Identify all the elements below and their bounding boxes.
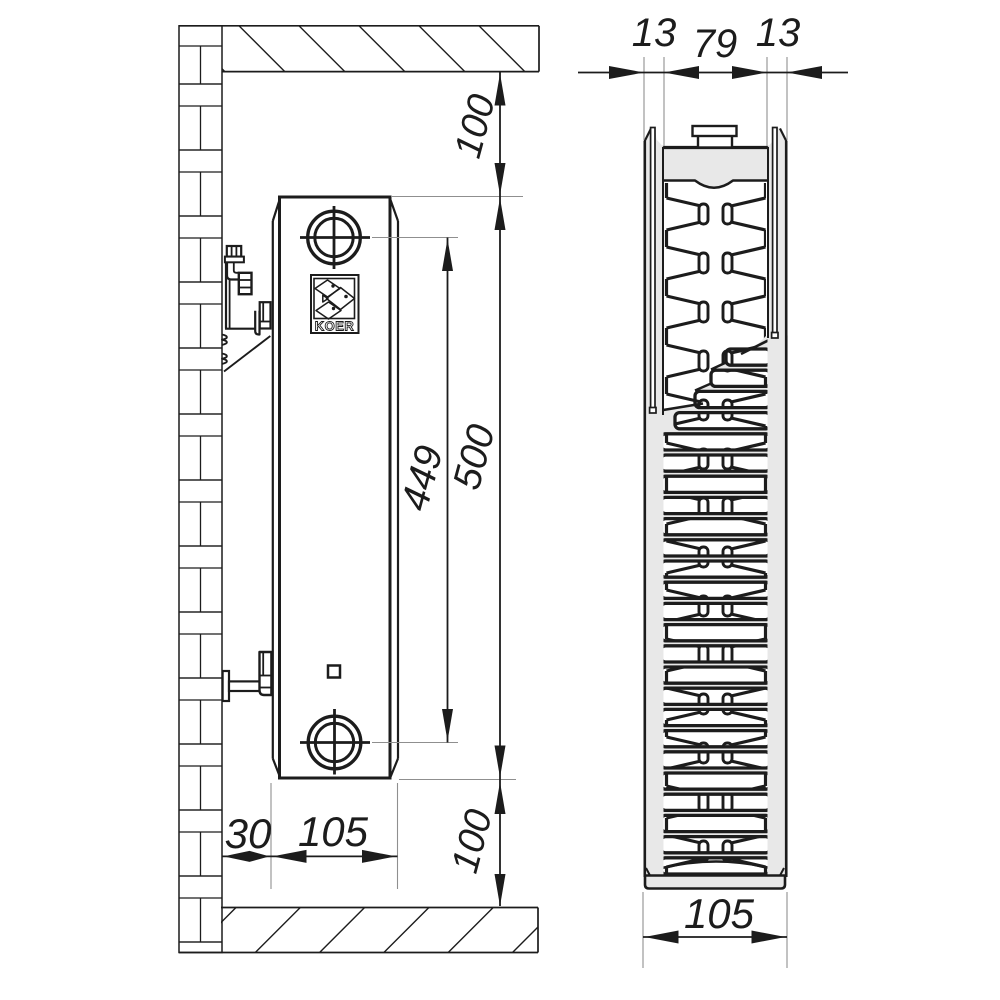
svg-text:KOER: KOER [315, 319, 355, 334]
svg-text:79: 79 [693, 22, 738, 66]
svg-text:30: 30 [225, 810, 272, 857]
svg-text:105: 105 [684, 890, 755, 937]
svg-text:105: 105 [298, 808, 369, 855]
svg-text:13: 13 [632, 11, 677, 55]
svg-text:13: 13 [756, 11, 801, 55]
